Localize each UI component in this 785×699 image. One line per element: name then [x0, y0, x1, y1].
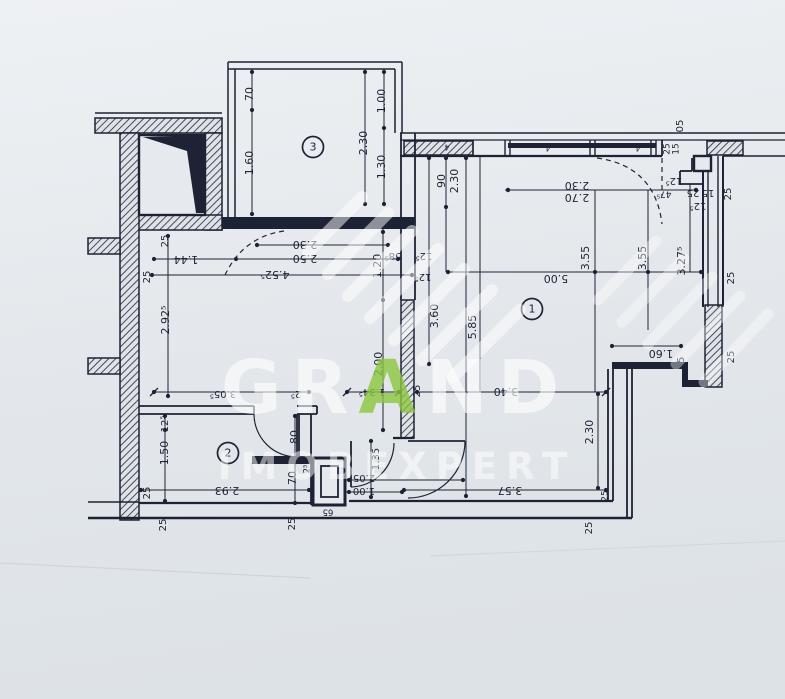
dimension-label: 05 [675, 120, 686, 133]
dimension-label: 70 [243, 87, 256, 101]
watermark-subtitle-text: IMOBEXPERT [218, 445, 577, 488]
dimension-label: 25 [142, 271, 153, 284]
dimension-label: 25 [723, 188, 734, 201]
dimension-label: 25 [287, 518, 298, 531]
dimension-label: 25 [726, 272, 737, 285]
dimension-label: 25 [687, 187, 700, 198]
watermark-brand-text: GRAND [221, 345, 569, 431]
dimension-label: 25 [142, 487, 153, 500]
dimension-label: 1.30 [375, 155, 388, 180]
dimension-label: 15 [702, 187, 715, 198]
dimension-label: 1.60 [649, 347, 674, 360]
watermark-accent-letter: A [359, 345, 426, 431]
dimension-label: 4 [635, 144, 640, 153]
dimension-label: 15 [672, 143, 682, 154]
dimension-label: 2.30 [357, 131, 370, 156]
dimension-label: 2.30 [583, 420, 596, 445]
dimension-label: 1.44 [174, 253, 199, 266]
dimension-label: 4 [444, 143, 449, 152]
dimension-label: 1.50 [158, 441, 171, 466]
dimension-label: 12⁵ [160, 416, 171, 433]
dimension-label: 4 [245, 219, 250, 228]
dimension-label: 12⁵ [690, 200, 707, 211]
dimension-label: 47⁵ [656, 189, 671, 199]
dimension-label: 1.60 [243, 151, 256, 176]
dimension-label: 4.52⁵ [261, 268, 290, 281]
window-glazing [508, 143, 656, 148]
dimension-label: 25 [601, 490, 611, 501]
dimension-label: 25 [158, 519, 169, 532]
dimension-label: 1.00 [375, 89, 388, 114]
dimension-label: 65 [323, 507, 334, 517]
floor-plan-scan: 123 251.442.302.504.52⁵252.92⁵1.2058⁵12⁵… [0, 0, 785, 699]
dimension-label: 2.70 [565, 191, 590, 204]
svg-text:1: 1 [529, 303, 536, 316]
dimension-label: 5.00 [544, 272, 569, 285]
dimension-label: 4 [545, 144, 550, 153]
dimension-label: 80 [288, 430, 301, 444]
dimension-label: 25 [584, 522, 595, 535]
dimension-label: 90 [435, 174, 448, 188]
dimension-label: 2.30 [565, 179, 590, 192]
dimension-label: 2.30 [448, 169, 461, 194]
dimension-label: 12⁵ [666, 175, 683, 186]
svg-text:3: 3 [310, 141, 317, 154]
dimension-label: 25 [160, 235, 171, 248]
floor-plan-svg: 123 251.442.302.504.52⁵252.92⁵1.2058⁵12⁵… [0, 0, 785, 699]
dimension-label: 3.55 [579, 246, 592, 271]
dimension-label: 2.92⁵ [159, 306, 172, 335]
